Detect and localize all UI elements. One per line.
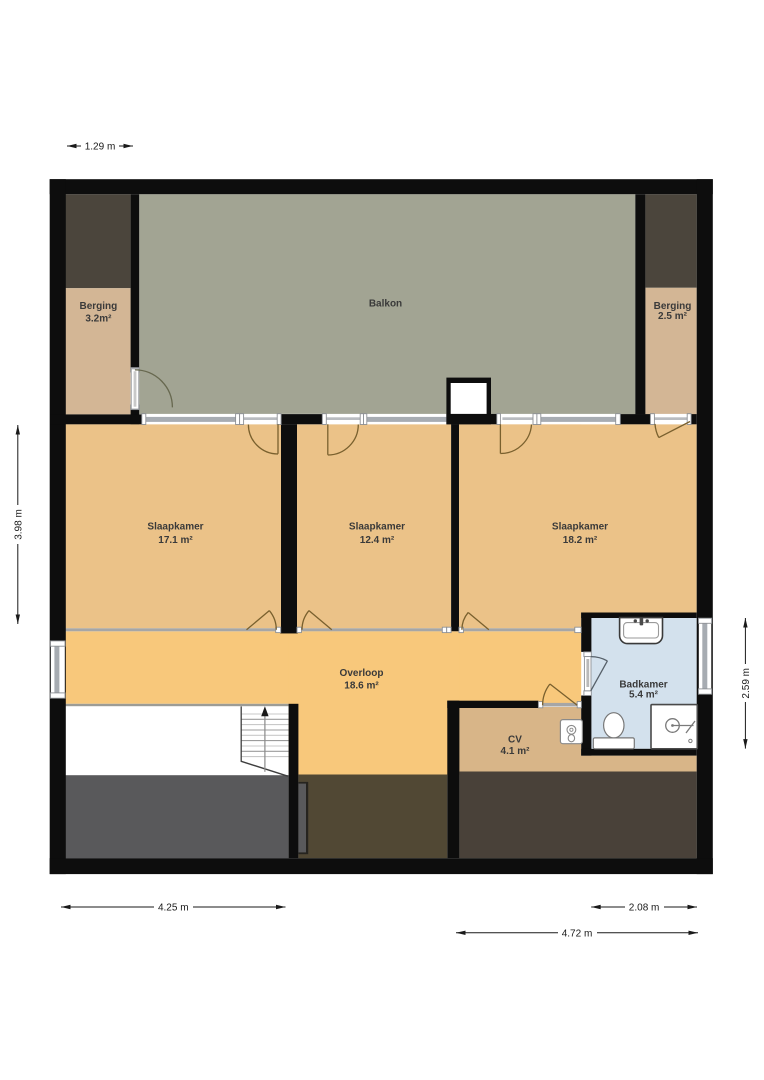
svg-text:2.08 m: 2.08 m <box>629 903 660 914</box>
svg-text:12.4 m²: 12.4 m² <box>360 535 395 546</box>
svg-text:Berging: Berging <box>654 301 692 312</box>
svg-text:18.6 m²: 18.6 m² <box>344 681 379 692</box>
svg-text:4.1 m²: 4.1 m² <box>501 746 531 757</box>
svg-text:5.4 m²: 5.4 m² <box>629 690 659 701</box>
svg-text:Slaapkamer: Slaapkamer <box>552 522 608 533</box>
svg-text:3.2m²: 3.2m² <box>85 313 112 324</box>
svg-text:3.98 m: 3.98 m <box>13 509 24 540</box>
svg-text:Slaapkamer: Slaapkamer <box>147 522 203 533</box>
svg-text:4.72 m: 4.72 m <box>562 928 593 939</box>
svg-text:18.2 m²: 18.2 m² <box>563 535 598 546</box>
svg-text:Balkon: Balkon <box>369 299 402 310</box>
svg-text:Overloop: Overloop <box>340 668 384 679</box>
svg-text:Berging: Berging <box>80 301 118 312</box>
svg-text:2.5 m²: 2.5 m² <box>658 311 688 322</box>
svg-text:4.25 m: 4.25 m <box>158 903 189 914</box>
svg-text:Badkamer: Badkamer <box>619 679 667 690</box>
svg-text:Slaapkamer: Slaapkamer <box>349 522 405 533</box>
svg-text:17.1 m²: 17.1 m² <box>158 535 193 546</box>
svg-text:2.59 m: 2.59 m <box>741 668 752 699</box>
svg-text:1.29 m: 1.29 m <box>85 142 116 153</box>
svg-text:CV: CV <box>508 734 522 745</box>
